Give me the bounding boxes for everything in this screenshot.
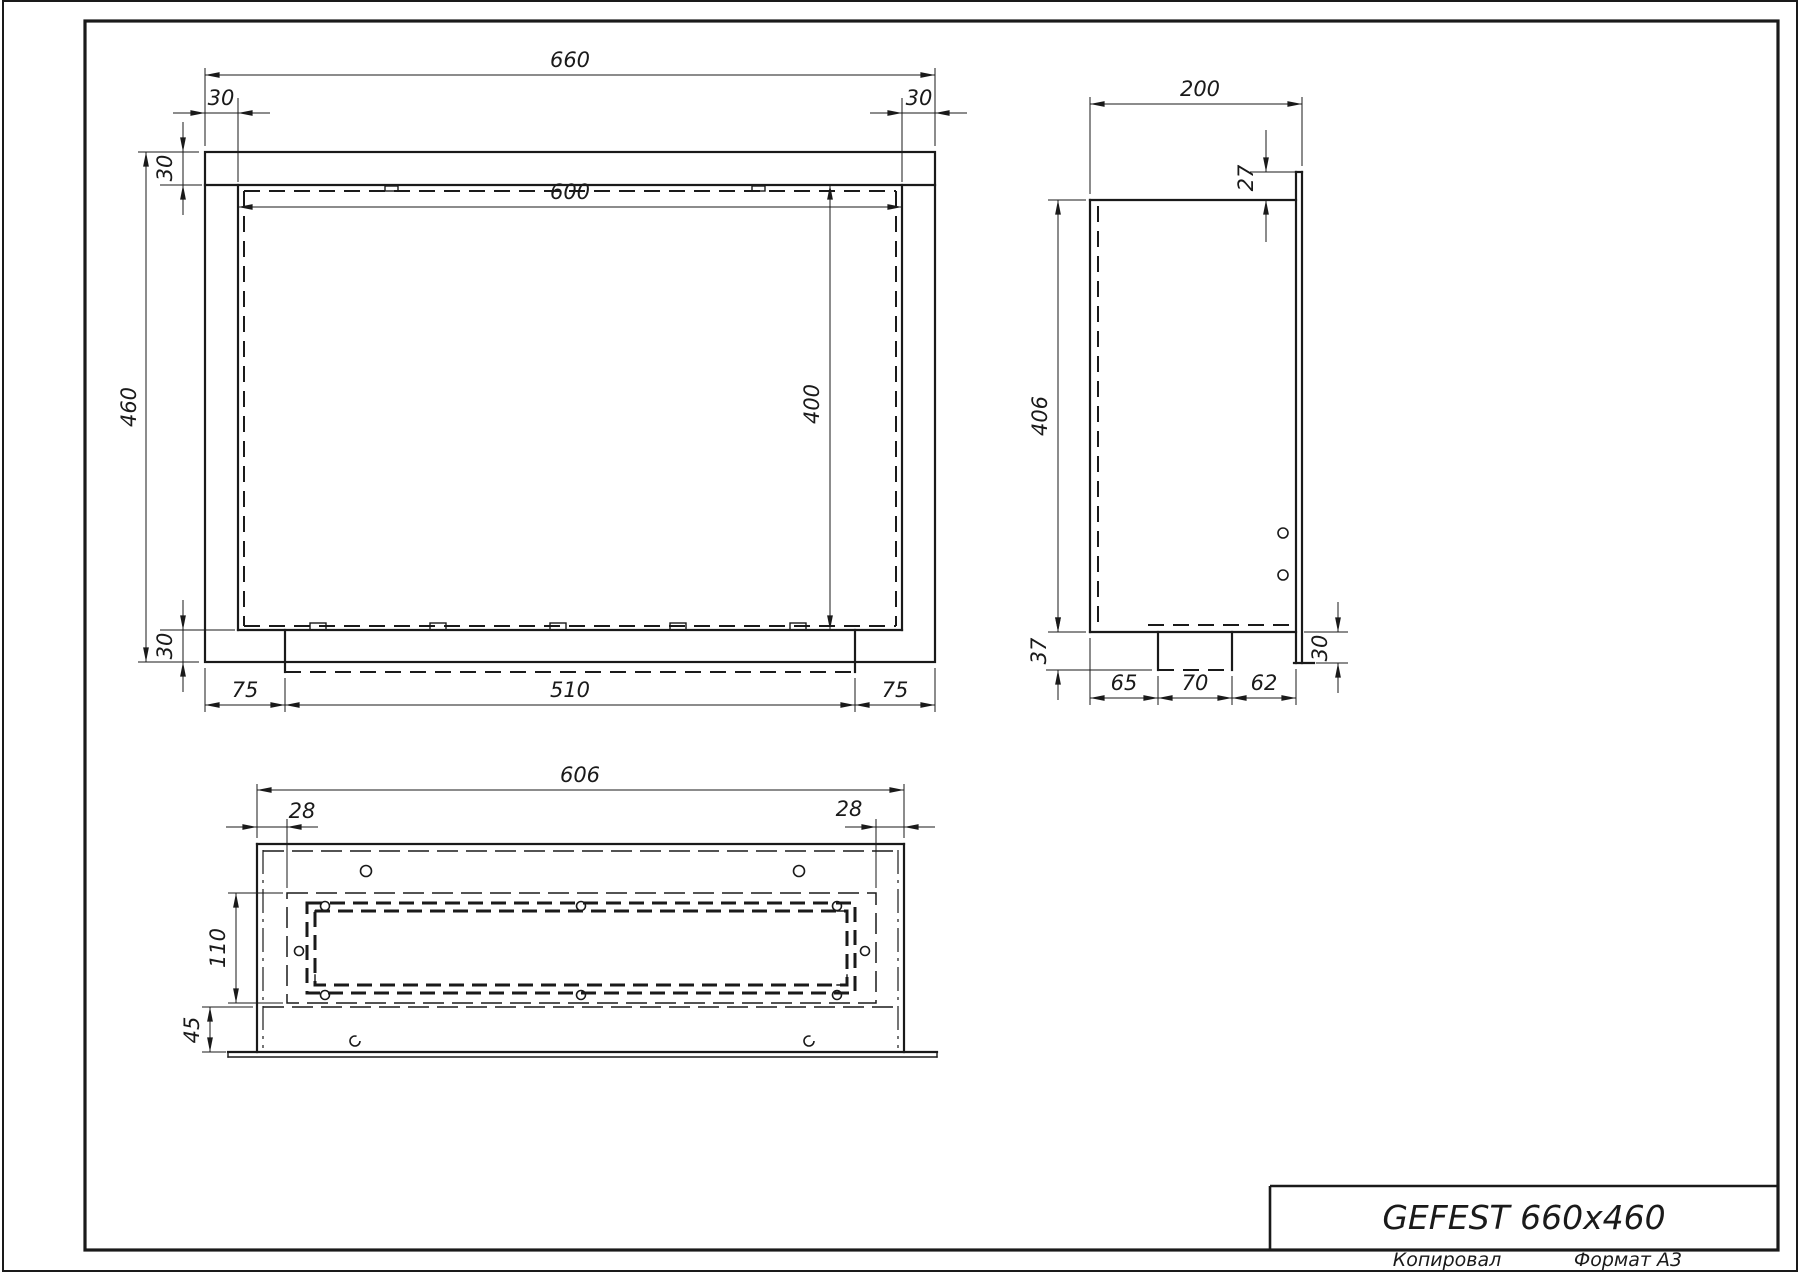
- title-block: GEFEST 660x460: [1270, 1186, 1778, 1250]
- dim-front-side-right: 30: [906, 86, 933, 110]
- dim-side-seg-left: 65: [1111, 671, 1138, 695]
- side-flange-hole: [1278, 528, 1288, 538]
- dim-front-opening-height: 400: [800, 384, 824, 424]
- dim-bottom-width: 606: [560, 763, 600, 787]
- burner-hole: [577, 902, 586, 911]
- dim-front-top: 30: [153, 155, 177, 182]
- burner-hole: [321, 902, 330, 911]
- dim-front-bottom: 30: [153, 633, 177, 660]
- dim-front-tray-width: 510: [550, 678, 590, 702]
- bottom-view: 606 28 28 110 45: [180, 763, 937, 1057]
- dim-front-opening-width: 600: [550, 180, 590, 204]
- dim-side-lip: 27: [1234, 164, 1258, 191]
- burner-hole: [295, 947, 304, 956]
- front-view: 660 30 30 30 460 30 600 400: [117, 48, 967, 712]
- burner-hole: [321, 991, 330, 1000]
- burner-outline-outer: [307, 903, 855, 993]
- burner-outline-inner: [315, 911, 847, 985]
- sheet-footer: Копировал Формат А3: [1393, 1249, 1682, 1271]
- drawing-canvas: 660 30 30 30 460 30 600 400: [0, 0, 1800, 1273]
- drawing-title: GEFEST 660x460: [1382, 1198, 1665, 1237]
- dim-side-seg-right: 62: [1251, 671, 1278, 695]
- dim-side-height: 406: [1028, 396, 1052, 436]
- dim-front-width: 660: [550, 48, 590, 72]
- drawing-frame: [85, 21, 1778, 1250]
- side-flange-hole: [1278, 570, 1288, 580]
- dim-front-height: 460: [117, 387, 141, 427]
- mount-hole: [361, 866, 372, 877]
- dim-bottom-front-offset: 45: [180, 1017, 204, 1044]
- burner-hole: [861, 947, 870, 956]
- dim-bottom-opening-depth: 110: [206, 928, 230, 968]
- dim-side-depth: 200: [1180, 77, 1220, 101]
- dim-front-side-left: 30: [208, 86, 235, 110]
- front-hole: [804, 1036, 814, 1046]
- dim-front-tray-right: 75: [882, 678, 909, 702]
- front-hole: [350, 1036, 360, 1046]
- side-view: 200 27 406 37 65 70 62 30: [1027, 77, 1348, 705]
- dim-side-tray-drop: 37: [1027, 637, 1051, 664]
- dim-front-tray-left: 75: [232, 678, 259, 702]
- dim-bottom-inset-right: 28: [836, 797, 863, 821]
- drawing-sheet: 660 30 30 30 460 30 600 400: [0, 0, 1800, 1273]
- front-outline: [205, 152, 935, 662]
- dim-side-seg-center: 70: [1182, 671, 1209, 695]
- footer-format-label: Формат А3: [1574, 1249, 1682, 1271]
- dim-bottom-inset-left: 28: [289, 799, 316, 823]
- dim-side-flange-drop: 30: [1308, 635, 1332, 662]
- mount-hole: [794, 866, 805, 877]
- footer-copied-label: Копировал: [1393, 1249, 1502, 1271]
